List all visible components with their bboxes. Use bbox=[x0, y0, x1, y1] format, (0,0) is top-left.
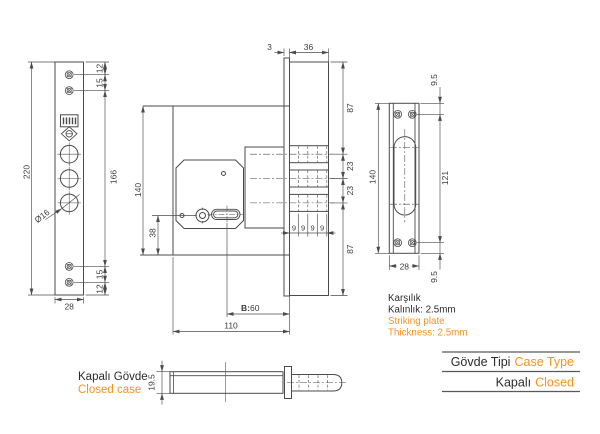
dim-front-screw-span: 166 bbox=[109, 170, 119, 184]
note-kalinlik: Kalınlık: 2.5mm bbox=[388, 305, 456, 316]
dim-front-height: 220 bbox=[22, 165, 32, 179]
bottom-view-caption: Kapalı Gövde Closed case bbox=[78, 371, 148, 396]
dim-body-width: 110 bbox=[224, 321, 238, 331]
note-karsilik: Karşılık bbox=[388, 293, 421, 304]
dim-faceplate-thickness: 3 bbox=[267, 42, 272, 52]
dim-key-center-height: 38 bbox=[148, 228, 158, 238]
dim-strike-screw-top-offset: 9.5 bbox=[429, 74, 439, 86]
dim-strike-screw-span: 121 bbox=[440, 171, 450, 185]
dim-bolt-pitch-2: 23 bbox=[345, 186, 355, 196]
dim-front-screw-top-gap: 15 bbox=[95, 78, 105, 88]
dim-front-screw-bot-gap: 15 bbox=[95, 270, 105, 280]
dim-throw-step-2: 9 bbox=[301, 224, 305, 233]
dim-strike-height: 140 bbox=[368, 170, 378, 184]
dim-bolt-pitch-1: 23 bbox=[345, 161, 355, 171]
caption-closed-case: Closed case bbox=[78, 384, 141, 396]
dim-front-screw-bot-offset: 12 bbox=[95, 284, 105, 294]
dim-front-width: 28 bbox=[64, 302, 74, 312]
dim-bolt-to-bottom: 87 bbox=[345, 244, 355, 254]
dim-throw-step-4: 9 bbox=[320, 224, 324, 233]
lock-technical-drawing: 220 12 15 166 15 12 28 Ø16 bbox=[0, 0, 600, 434]
dim-strike-screw-bot-offset: 9.5 bbox=[429, 271, 439, 283]
dim-throw-step-3: 9 bbox=[311, 224, 315, 233]
dim-throw-step-1: 9 bbox=[292, 224, 296, 233]
dim-front-screw-top-offset: 12 bbox=[95, 64, 105, 74]
spec-table-row-closed: KapalıClosed bbox=[496, 376, 574, 390]
dim-backset: B:60 bbox=[241, 303, 260, 313]
dim-top-to-bolt: 87 bbox=[345, 103, 355, 113]
dim-strike-width: 28 bbox=[400, 261, 410, 271]
caption-kapali-govde: Kapalı Gövde bbox=[78, 371, 148, 383]
dim-bolt-throw: 36 bbox=[304, 42, 314, 52]
dim-body-height: 140 bbox=[133, 183, 143, 197]
technical-drawing-page: 220 12 15 166 15 12 28 Ø16 bbox=[0, 0, 600, 434]
note-thickness: Thickness: 2.5mm bbox=[388, 328, 468, 339]
dim-bottom-thickness: 19.5 bbox=[147, 374, 157, 391]
note-striking-plate: Striking plate bbox=[388, 316, 445, 327]
